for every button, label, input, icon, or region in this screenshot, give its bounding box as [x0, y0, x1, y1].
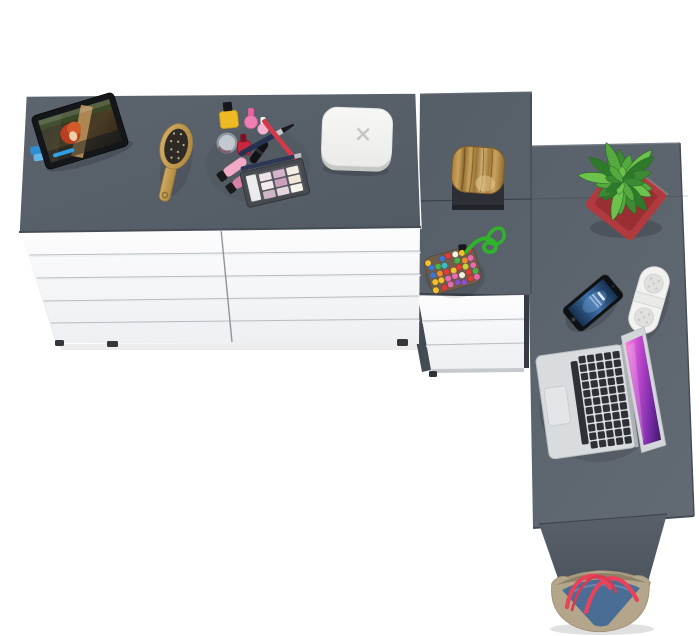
laptop-key — [599, 379, 607, 387]
laptop-key — [611, 403, 619, 411]
laptop-key — [590, 441, 598, 449]
laptop-key — [597, 431, 605, 439]
laptop-key — [623, 427, 631, 435]
laptop-key — [589, 371, 597, 379]
dresser-foot-left — [55, 340, 64, 346]
laptop-key — [624, 436, 632, 444]
tote-bag — [550, 570, 654, 635]
laptop-key — [588, 424, 596, 432]
laptop-key — [600, 387, 608, 395]
laptop-key — [602, 404, 610, 412]
laptop-key — [578, 356, 586, 364]
laptop-key — [579, 364, 587, 372]
stump-log — [450, 145, 505, 195]
laptop-key — [613, 420, 621, 428]
laptop-key — [589, 432, 597, 440]
white-media-box — [321, 107, 393, 177]
laptop-key — [581, 373, 589, 381]
laptop-key — [606, 369, 614, 377]
laptop-key — [583, 390, 591, 398]
product-photo — [0, 0, 700, 636]
laptop-key — [612, 351, 620, 359]
laptop-key — [599, 439, 607, 447]
laptop-key — [616, 437, 624, 445]
laptop-key — [622, 419, 630, 427]
laptop-key — [587, 415, 595, 423]
desk-pedestal-drawers — [408, 295, 529, 377]
laptop-key — [595, 353, 603, 361]
laptop-key — [595, 414, 603, 422]
laptop-key — [605, 421, 613, 429]
stump-base-front — [452, 205, 504, 210]
laptop-key — [584, 398, 592, 406]
laptop-key — [616, 376, 624, 384]
laptop-key — [604, 352, 612, 360]
laptop-key — [618, 393, 626, 401]
box-top — [321, 107, 393, 167]
laptop-key — [587, 354, 595, 362]
laptop-key — [613, 359, 621, 367]
laptop-key — [621, 410, 629, 418]
laptop-key — [609, 386, 617, 394]
laptop-key — [610, 395, 618, 403]
laptop-key — [607, 438, 615, 446]
laptop-key — [596, 362, 604, 370]
laptop-key — [612, 412, 620, 420]
laptop-key — [582, 381, 590, 389]
laptop-key — [590, 380, 598, 388]
laptop-key — [601, 396, 609, 404]
dresser-foot-right — [397, 339, 408, 346]
laptop-key — [606, 430, 614, 438]
dresser-front — [21, 227, 420, 344]
laptop-key — [594, 405, 602, 413]
wood-stump-decor — [450, 145, 505, 210]
laptop-key — [588, 363, 596, 371]
pedestal-foot — [429, 371, 437, 377]
laptop-key — [593, 397, 601, 405]
laptop-trackpad — [544, 386, 571, 427]
laptop-key — [619, 402, 627, 410]
glitter-jar — [217, 133, 238, 154]
laptop-key — [598, 370, 606, 378]
laptop-key — [617, 385, 625, 393]
scene-svg — [0, 0, 700, 636]
laptop-key — [615, 368, 623, 376]
laptop-key — [614, 429, 622, 437]
laptop-key — [591, 388, 599, 396]
laptop-key — [605, 360, 613, 368]
laptop-key — [604, 413, 612, 421]
pedestal-front — [418, 295, 524, 369]
laptop-key — [607, 377, 615, 385]
laptop-key — [585, 407, 593, 415]
laptop-key — [596, 422, 604, 430]
dresser-foot-mid — [107, 341, 118, 347]
